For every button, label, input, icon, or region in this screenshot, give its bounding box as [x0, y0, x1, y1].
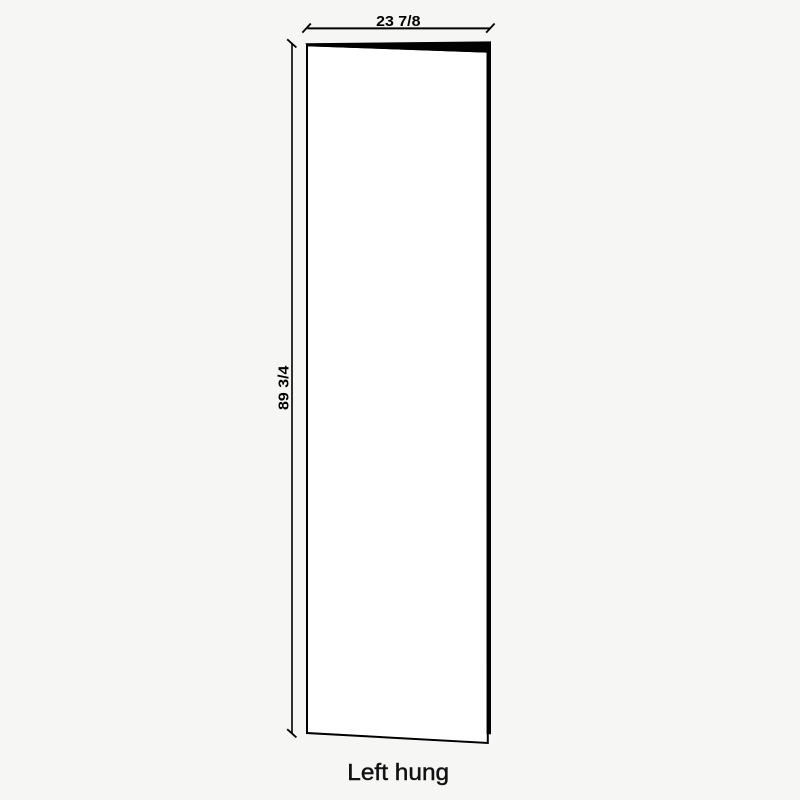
svg-text:23 7/8: 23 7/8 — [376, 14, 420, 30]
svg-text:Left hung: Left hung — [347, 759, 449, 785]
svg-text:89 3/4: 89 3/4 — [276, 365, 292, 410]
